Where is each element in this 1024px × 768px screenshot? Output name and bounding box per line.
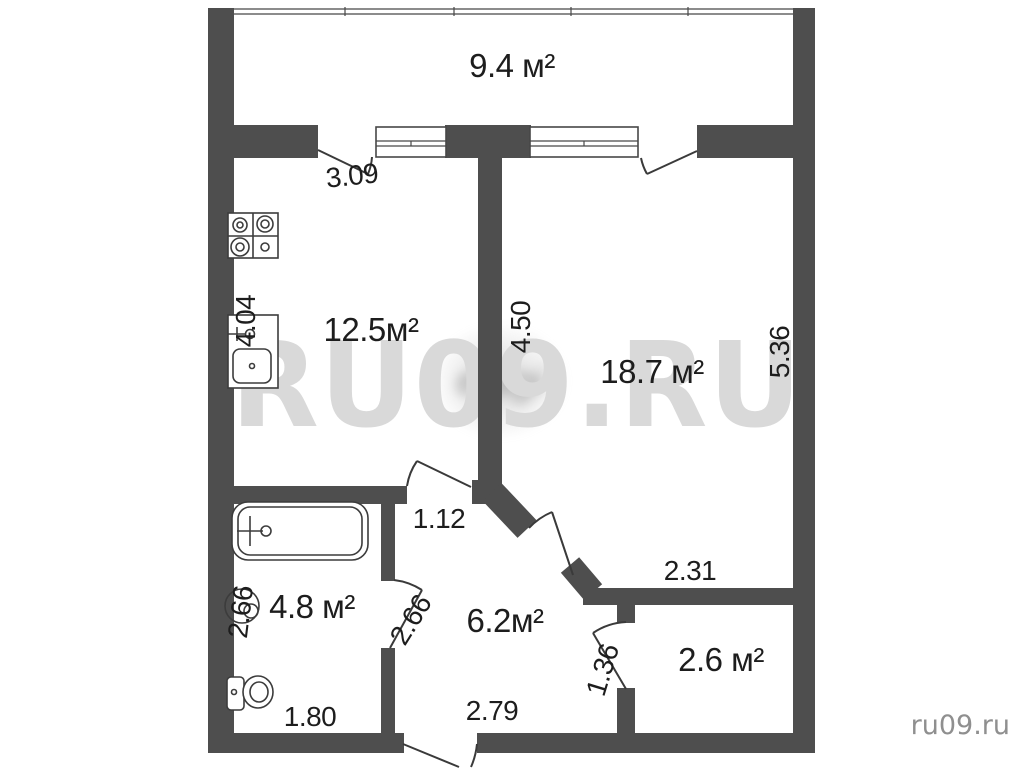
dim-bathroom-width: 1.80 xyxy=(284,701,337,733)
living-room-area-label: 18.7 м² xyxy=(600,353,704,391)
dim-hallway-width: 2.79 xyxy=(466,695,519,727)
kitchen-hall-door xyxy=(407,461,471,487)
floorplan-drawing xyxy=(0,0,1024,768)
kitchen-window xyxy=(376,127,446,157)
storage-area-label: 2.6 м² xyxy=(678,641,764,679)
dim-living-right: 5.36 xyxy=(764,326,796,379)
dim-kitchen-depth: 4.04 xyxy=(230,295,262,348)
site-url: ru09.ru xyxy=(911,710,1010,741)
balcony-glazing xyxy=(234,7,793,16)
dim-balcony-door: 3.09 xyxy=(324,157,380,194)
dim-storage-width: 2.31 xyxy=(664,555,717,587)
hallway-area-label: 6.2м² xyxy=(466,602,543,640)
toilet-icon xyxy=(227,676,273,710)
dim-bathroom-left: 2.66 xyxy=(222,584,260,640)
living-room-window xyxy=(530,127,638,157)
kitchen-area-label: 12.5м² xyxy=(324,311,419,349)
bathroom-area-label: 4.8 м² xyxy=(269,588,355,626)
entrance-door xyxy=(403,744,477,767)
bathtub-icon xyxy=(232,502,368,560)
living-hall-door xyxy=(529,512,573,575)
balcony-area-label: 9.4 м² xyxy=(469,47,555,85)
stove-icon xyxy=(228,213,278,258)
dim-living-left: 4.50 xyxy=(505,301,537,354)
balcony-door-living xyxy=(641,151,697,174)
dim-kitchen-door: 1.12 xyxy=(413,503,466,535)
floorplan-canvas: etagi RU09.RU xyxy=(0,0,1024,768)
